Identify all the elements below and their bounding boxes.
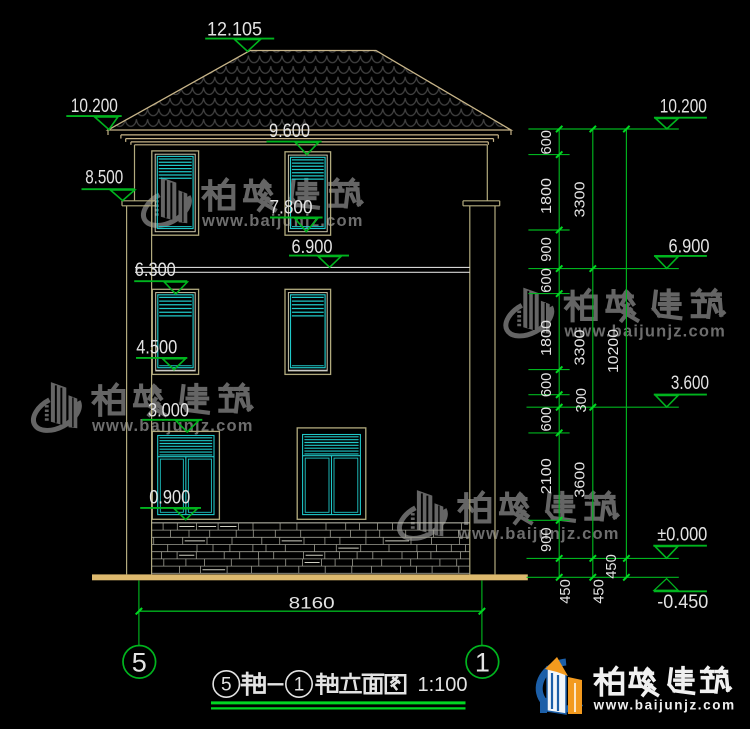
svg-text:3300: 3300 — [572, 182, 589, 218]
svg-text:1800: 1800 — [538, 178, 555, 214]
svg-text:6.900: 6.900 — [669, 236, 710, 257]
svg-text:600: 600 — [538, 407, 555, 432]
svg-text:1800: 1800 — [538, 320, 555, 356]
svg-text:10.200: 10.200 — [71, 96, 118, 117]
svg-text:3600: 3600 — [572, 462, 589, 498]
svg-text:6.300: 6.300 — [135, 260, 176, 281]
svg-text:7.800: 7.800 — [270, 198, 313, 219]
svg-text:1: 1 — [294, 675, 305, 696]
svg-text:8160: 8160 — [289, 593, 335, 612]
svg-text:8.500: 8.500 — [85, 168, 123, 189]
svg-text:10.200: 10.200 — [660, 97, 707, 118]
svg-text:300: 300 — [573, 388, 590, 413]
svg-text:0.900: 0.900 — [149, 487, 190, 508]
svg-text:±0.000: ±0.000 — [657, 525, 707, 546]
svg-text:450: 450 — [557, 579, 574, 604]
svg-text:900: 900 — [538, 527, 555, 552]
svg-text:5: 5 — [132, 648, 147, 678]
svg-text:2100: 2100 — [538, 458, 555, 494]
svg-text:600: 600 — [538, 268, 555, 293]
svg-text:10200: 10200 — [605, 329, 622, 373]
svg-text:4.500: 4.500 — [136, 337, 177, 358]
svg-text:3300: 3300 — [572, 330, 589, 366]
svg-text:1:100: 1:100 — [418, 674, 468, 696]
svg-text:450: 450 — [603, 554, 620, 579]
svg-text:12.105: 12.105 — [207, 20, 262, 41]
svg-text:450: 450 — [591, 579, 608, 604]
svg-text:600: 600 — [538, 130, 555, 155]
svg-text:3.600: 3.600 — [671, 373, 709, 394]
svg-text:600: 600 — [538, 373, 555, 398]
svg-text:-0.450: -0.450 — [657, 592, 708, 613]
svg-text:9.600: 9.600 — [269, 121, 310, 142]
svg-text:1: 1 — [475, 648, 490, 678]
svg-text:3.000: 3.000 — [148, 401, 189, 422]
svg-text:www.baijunjz.com: www.baijunjz.com — [593, 698, 736, 713]
svg-text:5: 5 — [221, 675, 232, 696]
svg-text:900: 900 — [538, 237, 555, 262]
